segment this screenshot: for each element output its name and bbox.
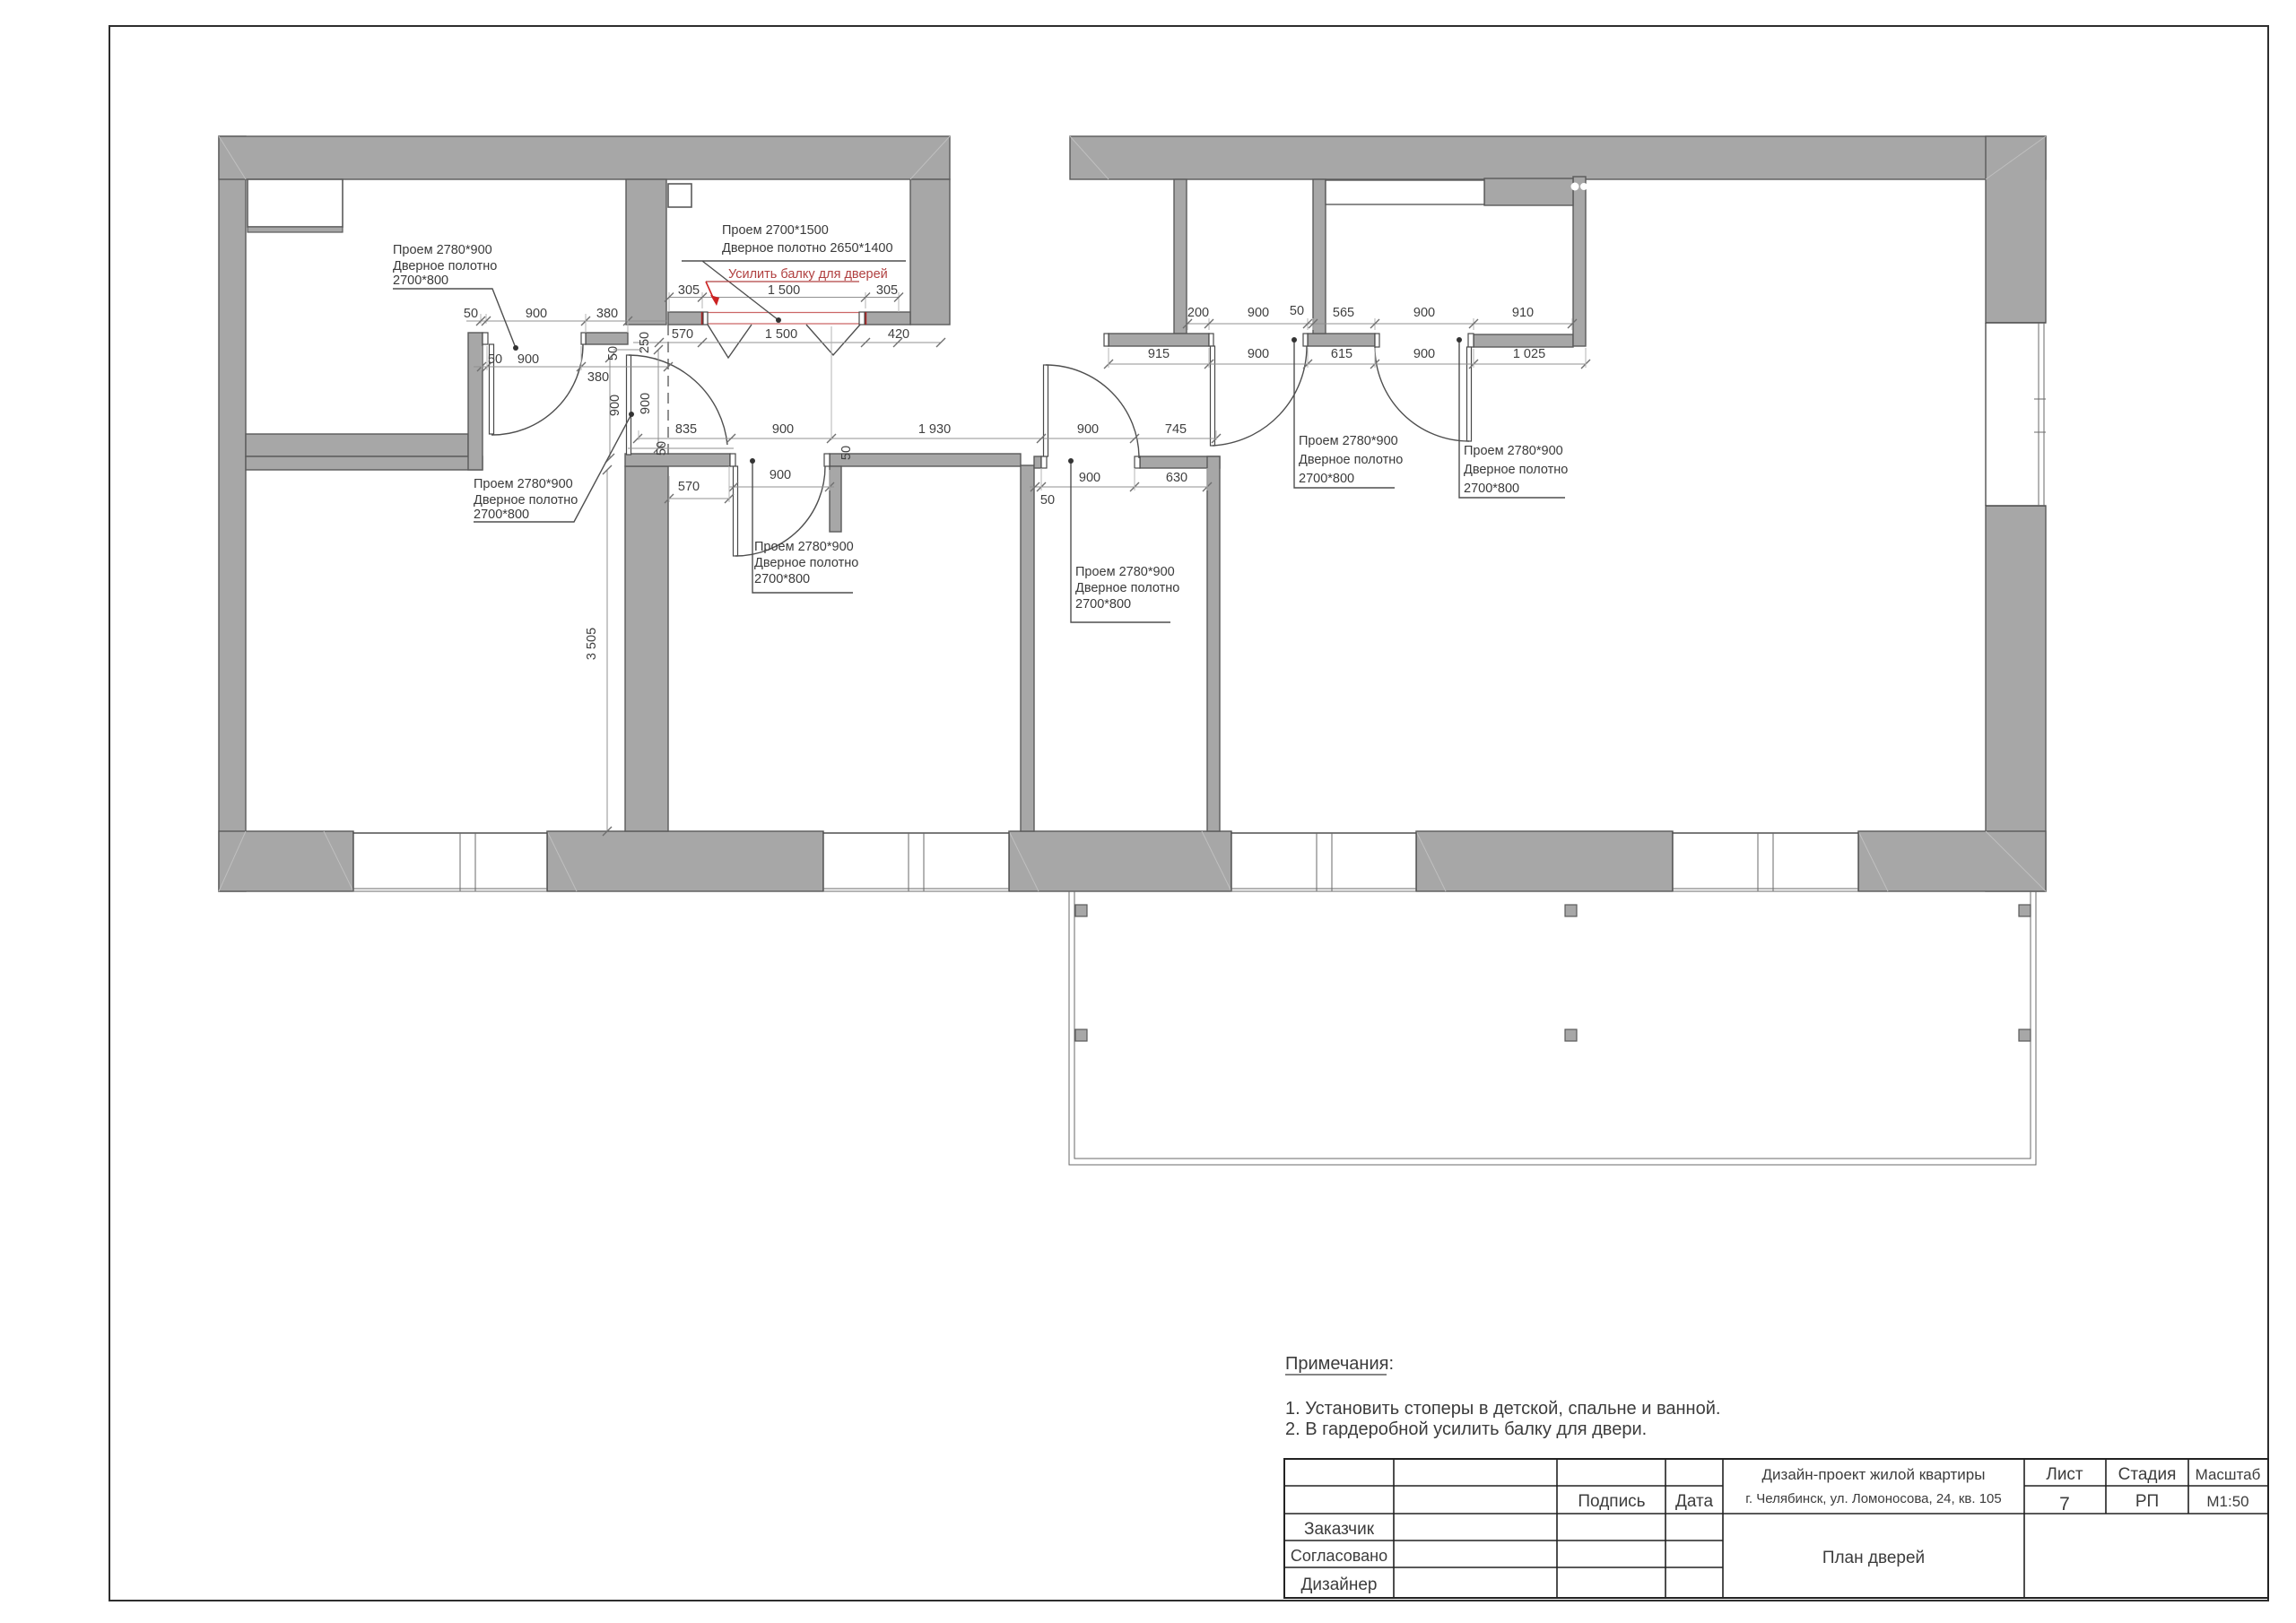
svg-text:900: 900: [526, 307, 547, 321]
svg-text:Усилить балку для дверей: Усилить балку для дверей: [728, 267, 888, 282]
svg-text:200: 200: [1187, 306, 1209, 320]
svg-text:2700*800: 2700*800: [754, 572, 810, 586]
svg-text:50: 50: [488, 352, 502, 367]
svg-text:Дата: Дата: [1675, 1492, 1714, 1511]
svg-text:570: 570: [678, 480, 700, 494]
svg-text:50: 50: [1290, 304, 1304, 318]
svg-text:Согласовано: Согласовано: [1291, 1547, 1387, 1565]
svg-text:50: 50: [606, 346, 621, 360]
svg-text:1. Установить стоперы в детско: 1. Установить стоперы в детской, спальне…: [1285, 1399, 1720, 1419]
svg-text:Дверное полотно: Дверное полотно: [393, 259, 497, 273]
svg-text:Подпись: Подпись: [1578, 1492, 1645, 1511]
svg-text:Дверное полотно: Дверное полотно: [1299, 453, 1403, 467]
svg-text:1 025: 1 025: [1513, 347, 1545, 361]
svg-text:900: 900: [1077, 422, 1099, 437]
svg-text:Проем 2780*900: Проем 2780*900: [393, 243, 492, 257]
svg-text:1 930: 1 930: [918, 422, 951, 437]
svg-text:900: 900: [639, 393, 653, 414]
svg-text:380: 380: [587, 370, 609, 385]
svg-text:900: 900: [1413, 347, 1435, 361]
svg-text:Проем 2780*900: Проем 2780*900: [474, 477, 573, 491]
svg-text:Дверное полотно: Дверное полотно: [474, 493, 578, 508]
svg-text:Масштаб: Масштаб: [2196, 1466, 2261, 1483]
svg-text:г. Челябинск, ул. Ломоносова,: г. Челябинск, ул. Ломоносова, 24, кв. 10…: [1745, 1491, 2001, 1506]
svg-text:835: 835: [675, 422, 697, 437]
svg-text:900: 900: [1248, 306, 1269, 320]
svg-text:745: 745: [1165, 422, 1187, 437]
svg-text:Лист: Лист: [2046, 1465, 2083, 1484]
svg-text:50: 50: [464, 307, 478, 321]
svg-text:Проем 2700*1500: Проем 2700*1500: [722, 223, 829, 238]
svg-text:565: 565: [1333, 306, 1354, 320]
svg-text:2700*800: 2700*800: [1299, 472, 1354, 486]
svg-text:420: 420: [888, 327, 909, 342]
svg-text:План дверей: План дверей: [1822, 1549, 1925, 1567]
svg-text:2700*800: 2700*800: [474, 508, 529, 522]
svg-text:900: 900: [1248, 347, 1269, 361]
svg-text:РП: РП: [2135, 1492, 2159, 1511]
svg-text:Дверное полотно 2650*1400: Дверное полотно 2650*1400: [722, 241, 893, 256]
svg-text:615: 615: [1331, 347, 1352, 361]
svg-text:900: 900: [770, 468, 791, 482]
svg-text:7: 7: [2059, 1494, 2070, 1515]
svg-text:2700*800: 2700*800: [1075, 597, 1131, 612]
svg-text:900: 900: [1079, 471, 1100, 485]
svg-text:630: 630: [1166, 471, 1187, 485]
svg-text:915: 915: [1148, 347, 1170, 361]
svg-text:2. В гардеробной усилить балку: 2. В гардеробной усилить балку для двери…: [1285, 1419, 1647, 1439]
svg-text:Проем 2780*900: Проем 2780*900: [754, 540, 854, 554]
svg-text:305: 305: [678, 283, 700, 298]
svg-text:50: 50: [839, 446, 854, 460]
svg-text:Дизайн-проект жилой квартиры: Дизайн-проект жилой квартиры: [1762, 1466, 1986, 1483]
svg-text:Дизайнер: Дизайнер: [1301, 1575, 1378, 1594]
svg-text:Дверное полотно: Дверное полотно: [1075, 581, 1179, 595]
svg-text:2700*800: 2700*800: [1464, 482, 1519, 496]
svg-text:305: 305: [876, 283, 898, 298]
svg-text:900: 900: [608, 395, 622, 416]
svg-text:Заказчик: Заказчик: [1304, 1520, 1375, 1539]
svg-text:380: 380: [596, 307, 618, 321]
svg-text:2700*800: 2700*800: [393, 273, 448, 288]
svg-text:900: 900: [1413, 306, 1435, 320]
svg-text:900: 900: [517, 352, 539, 367]
svg-text:Дверное полотно: Дверное полотно: [1464, 463, 1568, 477]
svg-text:3 505: 3 505: [585, 628, 599, 660]
svg-text:Стадия: Стадия: [2118, 1465, 2177, 1484]
svg-text:Дверное полотно: Дверное полотно: [754, 556, 858, 570]
svg-text:М1:50: М1:50: [2206, 1493, 2248, 1510]
svg-text:Проем 2780*900: Проем 2780*900: [1299, 434, 1398, 448]
svg-text:Проем 2780*900: Проем 2780*900: [1075, 565, 1175, 579]
svg-text:1 500: 1 500: [768, 283, 800, 298]
svg-text:Проем 2780*900: Проем 2780*900: [1464, 444, 1563, 458]
svg-text:570: 570: [672, 327, 693, 342]
svg-text:Примечания:: Примечания:: [1285, 1354, 1394, 1374]
svg-text:910: 910: [1512, 306, 1534, 320]
svg-text:50: 50: [1040, 493, 1055, 508]
svg-text:1 500: 1 500: [765, 327, 797, 342]
svg-text:900: 900: [772, 422, 794, 437]
